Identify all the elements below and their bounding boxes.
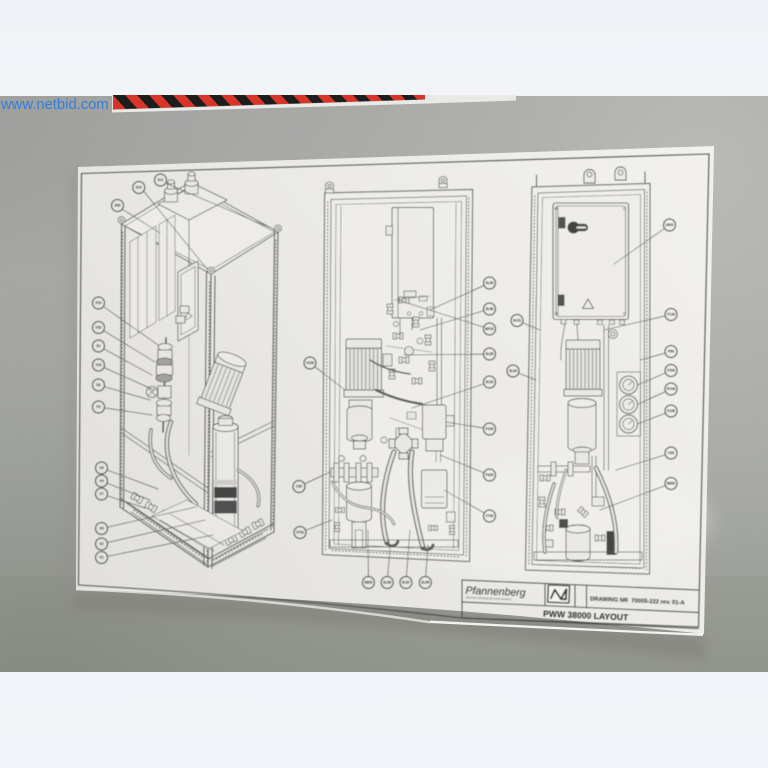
svg-text:S3: S3 bbox=[96, 383, 100, 387]
svg-text:S11: S11 bbox=[158, 178, 164, 182]
svg-text:V4: V4 bbox=[99, 479, 103, 483]
svg-text:BP32: BP32 bbox=[485, 327, 494, 331]
svg-text:SL87: SL87 bbox=[402, 581, 410, 585]
svg-text:SL91: SL91 bbox=[513, 319, 521, 323]
svg-text:P56: P56 bbox=[668, 350, 674, 354]
svg-text:F3: F3 bbox=[97, 405, 101, 409]
svg-text:SL85: SL85 bbox=[421, 581, 429, 585]
svg-text:V106: V106 bbox=[306, 361, 314, 365]
svg-text:V9: V9 bbox=[99, 527, 103, 531]
svg-text:F326: F326 bbox=[486, 473, 494, 477]
svg-text:V10: V10 bbox=[95, 363, 101, 367]
svg-text:SL84: SL84 bbox=[509, 369, 517, 373]
svg-text:V2: V2 bbox=[99, 542, 103, 546]
svg-text:S10: S10 bbox=[136, 186, 142, 190]
svg-text:B600: B600 bbox=[667, 482, 675, 486]
svg-text:S1: S1 bbox=[96, 344, 100, 348]
svg-text:SL86: SL86 bbox=[383, 581, 391, 585]
svg-text:VT30: VT30 bbox=[485, 514, 493, 518]
svg-text:SL89: SL89 bbox=[485, 352, 493, 356]
svg-text:N600: N600 bbox=[364, 581, 372, 585]
svg-text:F10: F10 bbox=[96, 301, 102, 305]
svg-text:F206: F206 bbox=[667, 369, 675, 373]
svg-text:SL86: SL86 bbox=[485, 307, 493, 311]
svg-text:V1: V1 bbox=[99, 556, 103, 560]
svg-text:FC06: FC06 bbox=[667, 387, 675, 391]
svg-text:V30: V30 bbox=[296, 485, 302, 489]
svg-text:X600: X600 bbox=[666, 223, 674, 227]
svg-text:TC30: TC30 bbox=[667, 313, 675, 317]
svg-text:F146: F146 bbox=[667, 409, 675, 413]
svg-text:SL82: SL82 bbox=[485, 380, 493, 384]
svg-text:F106: F106 bbox=[486, 427, 494, 431]
svg-text:VS6: VS6 bbox=[668, 451, 675, 455]
svg-text:www.netbid.com: www.netbid.com bbox=[0, 97, 109, 113]
svg-text:VT31: VT31 bbox=[296, 531, 304, 535]
svg-text:V7: V7 bbox=[99, 492, 103, 496]
svg-text:V32: V32 bbox=[95, 326, 101, 330]
svg-text:V5: V5 bbox=[99, 466, 103, 470]
svg-text:SL83: SL83 bbox=[485, 281, 493, 285]
svg-text:X60: X60 bbox=[114, 204, 120, 208]
